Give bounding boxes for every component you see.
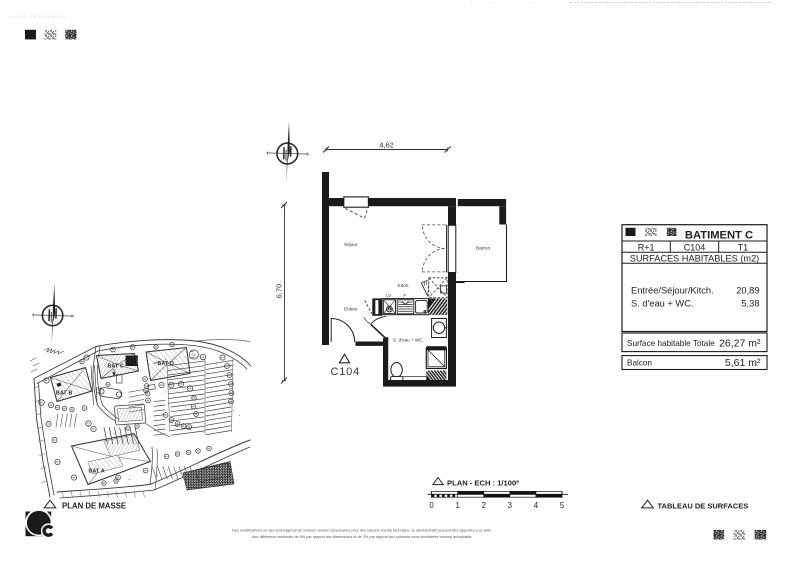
svg-text:Balcon: Balcon — [476, 246, 490, 251]
svg-text:BAT D: BAT D — [158, 361, 175, 367]
svg-text:T1: T1 — [738, 242, 749, 252]
svg-text:Balcon: Balcon — [627, 359, 652, 368]
svg-text:C104: C104 — [684, 242, 706, 252]
svg-text:S. d'eau + WC.: S. d'eau + WC. — [393, 338, 424, 343]
svg-text:1: 1 — [456, 501, 460, 510]
svg-text:3: 3 — [508, 501, 512, 510]
svg-text:PLAN DE MASSE: PLAN DE MASSE — [62, 502, 126, 511]
svg-text:20,89: 20,89 — [736, 285, 759, 295]
svg-text:6,70: 6,70 — [275, 284, 284, 299]
svg-text:SURFACES HABITABLES (m2): SURFACES HABITABLES (m2) — [630, 253, 760, 263]
svg-text:I N T E R - R E S I D E N C E: I N T E R - R E S I D E N C E S — [10, 14, 66, 19]
svg-text:2: 2 — [482, 501, 486, 510]
svg-text:Surface habitable Totale: Surface habitable Totale — [627, 339, 715, 348]
svg-text:4,62: 4,62 — [379, 141, 394, 150]
svg-text:R+1: R+1 — [638, 242, 655, 252]
svg-text:26,27 m²: 26,27 m² — [719, 337, 761, 349]
svg-text:BAT C: BAT C — [108, 364, 125, 370]
svg-text:4: 4 — [534, 501, 539, 510]
svg-text:5,38: 5,38 — [741, 299, 759, 309]
svg-text:BAT B: BAT B — [56, 391, 73, 397]
svg-text:PLAN - ECH : 1/100e: PLAN - ECH : 1/100e — [447, 479, 519, 488]
svg-text:Entrée/Séjour/Kitch.: Entrée/Séjour/Kitch. — [631, 285, 714, 295]
svg-text:Entrée: Entrée — [344, 307, 358, 312]
svg-text:0: 0 — [429, 501, 434, 510]
svg-text:5,61 m²: 5,61 m² — [725, 357, 761, 369]
svg-text:TABLEAU DE SURFACES: TABLEAU DE SURFACES — [658, 501, 749, 510]
svg-text:5: 5 — [560, 501, 565, 510]
svg-text:S. d'eau + WC.: S. d'eau + WC. — [631, 299, 694, 309]
svg-text:Des modifications ou des aména: Des modifications ou des aménagements mi… — [232, 529, 492, 533]
svg-text:BAT A: BAT A — [89, 469, 105, 475]
svg-text:BATIMENT C: BATIMENT C — [685, 229, 753, 241]
svg-text:Kitch.: Kitch. — [398, 283, 410, 289]
svg-text:Séjour: Séjour — [344, 242, 358, 247]
svg-text:Une différence maximale de 5%: Une différence maximale de 5% par rappor… — [251, 535, 472, 539]
svg-text:LV: LV — [386, 293, 391, 298]
svg-text:C104: C104 — [331, 366, 361, 378]
svg-text:F: F — [404, 293, 407, 298]
